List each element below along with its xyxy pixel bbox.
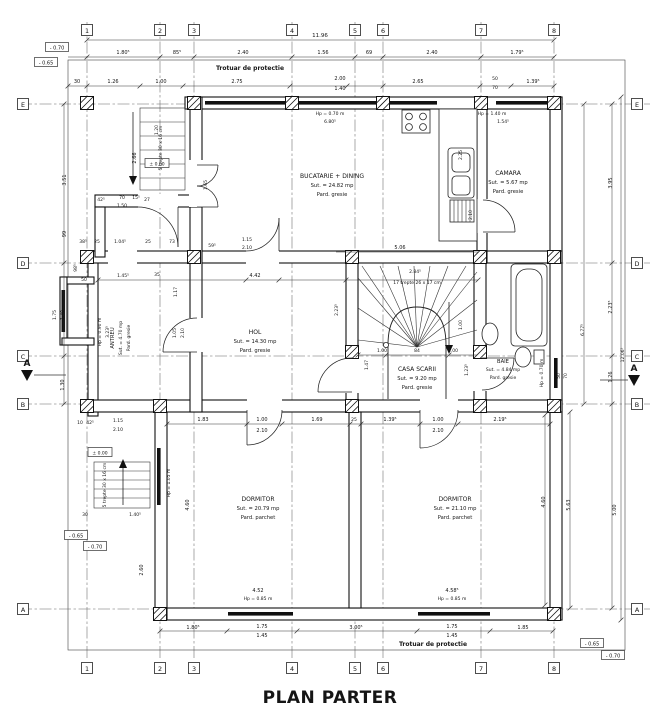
room-area: Sut. = 14.30 mp <box>234 339 277 345</box>
dim: 99 <box>62 231 68 237</box>
dim: 1.17 <box>173 287 179 297</box>
dim: 3.23⁵ <box>105 326 111 338</box>
axis-label: 6 <box>381 665 385 673</box>
dim: 11.96 <box>312 33 328 39</box>
dim: 6.77⁵ <box>580 324 586 336</box>
dim: 10 <box>77 420 83 426</box>
dim: 1.56 <box>317 50 328 56</box>
axis-label: E <box>21 101 25 109</box>
dim: 1.00 <box>155 79 166 85</box>
section-marker-right: A <box>600 364 640 386</box>
dim: 50 <box>556 373 562 379</box>
dim: 1.45 <box>256 633 267 639</box>
dim: 4.60 <box>541 496 547 507</box>
window-note: Hp = 0.70 m <box>316 111 345 117</box>
dim: 1.40 <box>60 310 66 320</box>
elevation-value: - 0.70 <box>88 545 103 551</box>
dim: 50 <box>81 277 87 283</box>
dim: 12.06⁵ <box>620 347 626 362</box>
trotuar-note-top: Trotuar de protectie <box>216 65 284 72</box>
dim: 1.00 <box>458 320 464 330</box>
dim: 1.26 <box>107 79 118 85</box>
window-note: 4.58⁵ <box>445 588 458 594</box>
dim: 70 <box>563 373 569 379</box>
dim: 1.23⁵ <box>464 364 470 376</box>
room-name: DORMITOR <box>241 496 274 503</box>
dim: 4.60 <box>185 499 191 510</box>
dim: 1.15 <box>242 237 252 243</box>
room-floor: Pard. parchet <box>241 515 276 521</box>
dim: 1.75 <box>52 310 58 320</box>
dim: 38⁵ <box>79 239 87 245</box>
axis-label: 1 <box>85 27 89 35</box>
axis-label: 4 <box>290 665 294 673</box>
dim: 2.10 <box>113 427 123 433</box>
dim: 1.39⁵ <box>526 79 539 85</box>
dim: 2.10 <box>242 245 252 251</box>
window-note: Hp = 1.05 m <box>166 469 172 498</box>
axis-label: 5 <box>353 27 357 35</box>
dim: 25 <box>145 239 151 245</box>
dim: 50 <box>492 76 498 82</box>
elevation-value: ± 0.00 <box>92 451 107 457</box>
dim: 4.42 <box>249 273 260 279</box>
dim: 2.40 <box>237 50 248 56</box>
axis-label: 7 <box>479 665 483 673</box>
room-name: BUCATARIE + DINING <box>300 173 364 180</box>
window-note: Hp = 0.85 m <box>438 596 467 602</box>
dim: 1.15 <box>113 418 123 424</box>
dim: 1.00 <box>256 417 267 423</box>
dim: 2.10 <box>180 328 186 338</box>
window-note: Hp = 0.90 m <box>97 318 103 347</box>
axis-label: B <box>635 401 639 409</box>
dim: 2.65 <box>412 79 423 85</box>
dim: 35 <box>154 272 160 278</box>
dim: 2.75 <box>231 79 242 85</box>
dim: 1.75 <box>446 624 457 630</box>
dim: 2.40 <box>426 50 437 56</box>
room-area: Sut. = 9.20 mp <box>397 376 437 382</box>
window-note: 1.54⁵ <box>497 119 509 125</box>
dim: 1.00 <box>448 348 458 354</box>
dim: 1.69 <box>311 417 322 423</box>
dim: 2.23⁵ <box>608 300 614 313</box>
dim: 42⁵ <box>97 197 105 203</box>
room-name: HOL <box>249 329 262 336</box>
dim: 98⁵ <box>73 264 79 272</box>
washbasin <box>482 323 498 345</box>
dim: 1.40⁵ <box>129 512 141 518</box>
dim: 1.45 <box>446 633 457 639</box>
dim: 2.25 <box>458 150 464 160</box>
plan-title: PLAN PARTER <box>263 688 398 708</box>
dim: 1.30 <box>60 379 66 390</box>
room-floor: Pard. gresie <box>240 348 271 354</box>
dim: 2.19⁵ <box>493 417 506 423</box>
elevation-value: - 0.65 <box>39 61 54 67</box>
room-area: Sut. = 4.70 mp <box>118 321 124 355</box>
dim: 30 <box>82 512 88 518</box>
dim: 2.10 <box>468 210 474 220</box>
room-area: Sut. = 20.79 mp <box>237 506 280 512</box>
dim: 2.10 <box>256 428 267 434</box>
dim: 1.26 <box>608 371 614 382</box>
stair-note: 17 trepte 26 x 17 cm <box>393 280 441 286</box>
axis-label: 8 <box>552 27 556 35</box>
dim: 1.83 <box>197 417 208 423</box>
axis-label: E <box>635 101 639 109</box>
dim: 3.51 <box>62 174 68 185</box>
window-note: 6.80⁵ <box>324 119 336 125</box>
elevation-value: - 0.65 <box>585 642 600 648</box>
dim: 2.66 <box>132 152 138 163</box>
room-name: CASA SCARII <box>398 366 436 373</box>
room-area: Sut. = 4.84 mp <box>486 367 520 373</box>
axis-label: 6 <box>381 27 385 35</box>
dim: 84 <box>414 348 420 354</box>
room-name: BAIE <box>497 359 509 365</box>
dim: 1.80⁵ <box>116 50 129 56</box>
dim: 5.63 <box>566 499 572 510</box>
elevation-value: - 0.70 <box>50 46 65 52</box>
axis-label: 2 <box>158 665 162 673</box>
dim: 2.23⁵ <box>334 304 340 316</box>
room-floor: Pard. gresie <box>317 192 348 198</box>
section-marker-left: A <box>21 359 66 381</box>
dim: 3.95 <box>608 177 614 188</box>
section-letter: A <box>24 359 31 369</box>
window-note: Hp = 0.70 m <box>539 359 545 388</box>
axis-label: D <box>21 260 26 268</box>
dim: 70 <box>119 195 125 201</box>
dim: 69 <box>366 50 372 56</box>
dim: 1.45⁵ <box>117 273 129 279</box>
axis-label: 8 <box>552 665 556 673</box>
dim: 15⁵ <box>132 195 140 201</box>
trotuar-note-bottom: Trotuar de protectie <box>399 641 467 648</box>
room-floor: Pard. gresie <box>126 325 132 352</box>
window-note: 4.52 <box>252 588 263 594</box>
dim: 2.60 <box>139 564 145 575</box>
window-note: Hp = 0.85 m <box>244 596 273 602</box>
dim: 1.40 <box>334 86 345 92</box>
dim: 2.00 <box>334 76 345 82</box>
elevation-value: - 0.70 <box>606 654 621 660</box>
axis-label: 7 <box>479 27 483 35</box>
dim: 1.75 <box>256 624 267 630</box>
dim: 1.65 <box>203 180 209 190</box>
dim: 1.05 <box>172 328 178 338</box>
room-floor: Pard. gresie <box>402 385 433 391</box>
dim: 73 <box>169 239 175 245</box>
axis-label: 2 <box>158 27 162 35</box>
room-floor: Pard. parchet <box>438 515 473 521</box>
axis-label: A <box>21 606 26 614</box>
room-area: Sut. = 21.10 mp <box>434 506 477 512</box>
dim: 1.79⁵ <box>510 50 523 56</box>
dim: 59⁵ <box>208 243 216 249</box>
dim: 1.20 <box>154 125 160 135</box>
room-name: DORMITOR <box>438 496 471 503</box>
dim: 85⁵ <box>173 50 181 56</box>
dim: 30 <box>74 79 80 85</box>
dim: 1.39⁵ <box>383 417 396 423</box>
dim: 70 <box>492 85 498 91</box>
section-letter: A <box>631 364 638 374</box>
dim: 5.00 <box>612 504 618 515</box>
axis-label: 5 <box>353 665 357 673</box>
dim: 1.00 <box>377 348 387 354</box>
room-name: CAMARA <box>495 170 522 177</box>
dim: 27 <box>144 197 150 203</box>
dim: 5.06 <box>394 245 405 251</box>
entry-stairs-top <box>129 108 185 190</box>
axis-label: C <box>635 353 640 361</box>
stair-note: 5 trepte 30 x 16 cm <box>102 463 108 508</box>
room-area: Sut. = 5.67 mp <box>488 180 528 186</box>
window-note: Hp = 1.40 m <box>478 111 507 117</box>
axis-label: 4 <box>290 27 294 35</box>
axis-label: 3 <box>192 665 196 673</box>
room-area: Sut. = 24.82 mp <box>311 183 354 189</box>
dim: 3.00⁵ <box>349 625 362 631</box>
dim: 1.00 <box>432 417 443 423</box>
dim: 1.80⁵ <box>186 625 199 631</box>
dim: 25 <box>351 417 357 423</box>
axis-label: A <box>635 606 640 614</box>
room-floor: Pard. gresie <box>493 189 524 195</box>
room-floor: Pard. gresie <box>490 375 517 381</box>
dim: 1.50 <box>117 203 127 209</box>
dim: 25 <box>94 239 100 245</box>
dim: 1.47 <box>364 360 370 370</box>
dim: 42⁵ <box>86 420 94 426</box>
axis-label: D <box>635 260 640 268</box>
dim: 2.10 <box>432 428 443 434</box>
floor-plan-drawing: 1 2 3 4 5 6 7 8 1 2 3 4 5 6 7 8 E D C B … <box>0 0 669 720</box>
drawing-sheet: 1 2 3 4 5 6 7 8 1 2 3 4 5 6 7 8 E D C B … <box>0 0 669 720</box>
elevation-value: - 0.65 <box>69 534 84 540</box>
dim: 1.85 <box>517 625 528 631</box>
axis-label: B <box>21 401 25 409</box>
dim: 2.84⁵ <box>409 269 421 275</box>
dim: 1.04⁵ <box>114 239 126 245</box>
axis-label: 3 <box>192 27 196 35</box>
axis-label: 1 <box>85 665 89 673</box>
